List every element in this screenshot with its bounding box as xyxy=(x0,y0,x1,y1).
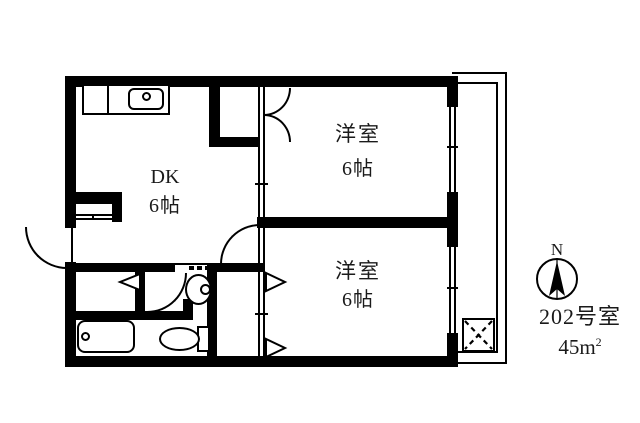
unit-area-value: 45 xyxy=(558,335,579,359)
unit-area-exponent: 2 xyxy=(596,335,602,349)
dk-room-size: 6帖 xyxy=(138,196,192,216)
compass-north-label: N xyxy=(543,241,571,258)
western-room-1-name: 洋室 xyxy=(327,124,389,145)
door-arrow-closet-bottom xyxy=(266,339,285,357)
door-arrow-hall xyxy=(120,274,140,290)
dk-room-name: DK xyxy=(141,167,189,187)
floorplan: DK 6帖 洋室 6帖 洋室 6帖 N 202号室 45m2 xyxy=(0,0,640,423)
door-arrow-closet-top xyxy=(266,273,285,291)
western-room-2-name: 洋室 xyxy=(327,261,389,282)
unit-number-label: 202号室 xyxy=(528,306,632,328)
hatch-x-line2 xyxy=(465,321,492,349)
unit-area-label: 45m2 xyxy=(528,336,632,358)
western-room-2-size: 6帖 xyxy=(331,290,385,310)
plan-symbols xyxy=(0,0,640,423)
western-room-1-size: 6帖 xyxy=(331,159,385,179)
unit-area-unit: m xyxy=(579,335,595,359)
